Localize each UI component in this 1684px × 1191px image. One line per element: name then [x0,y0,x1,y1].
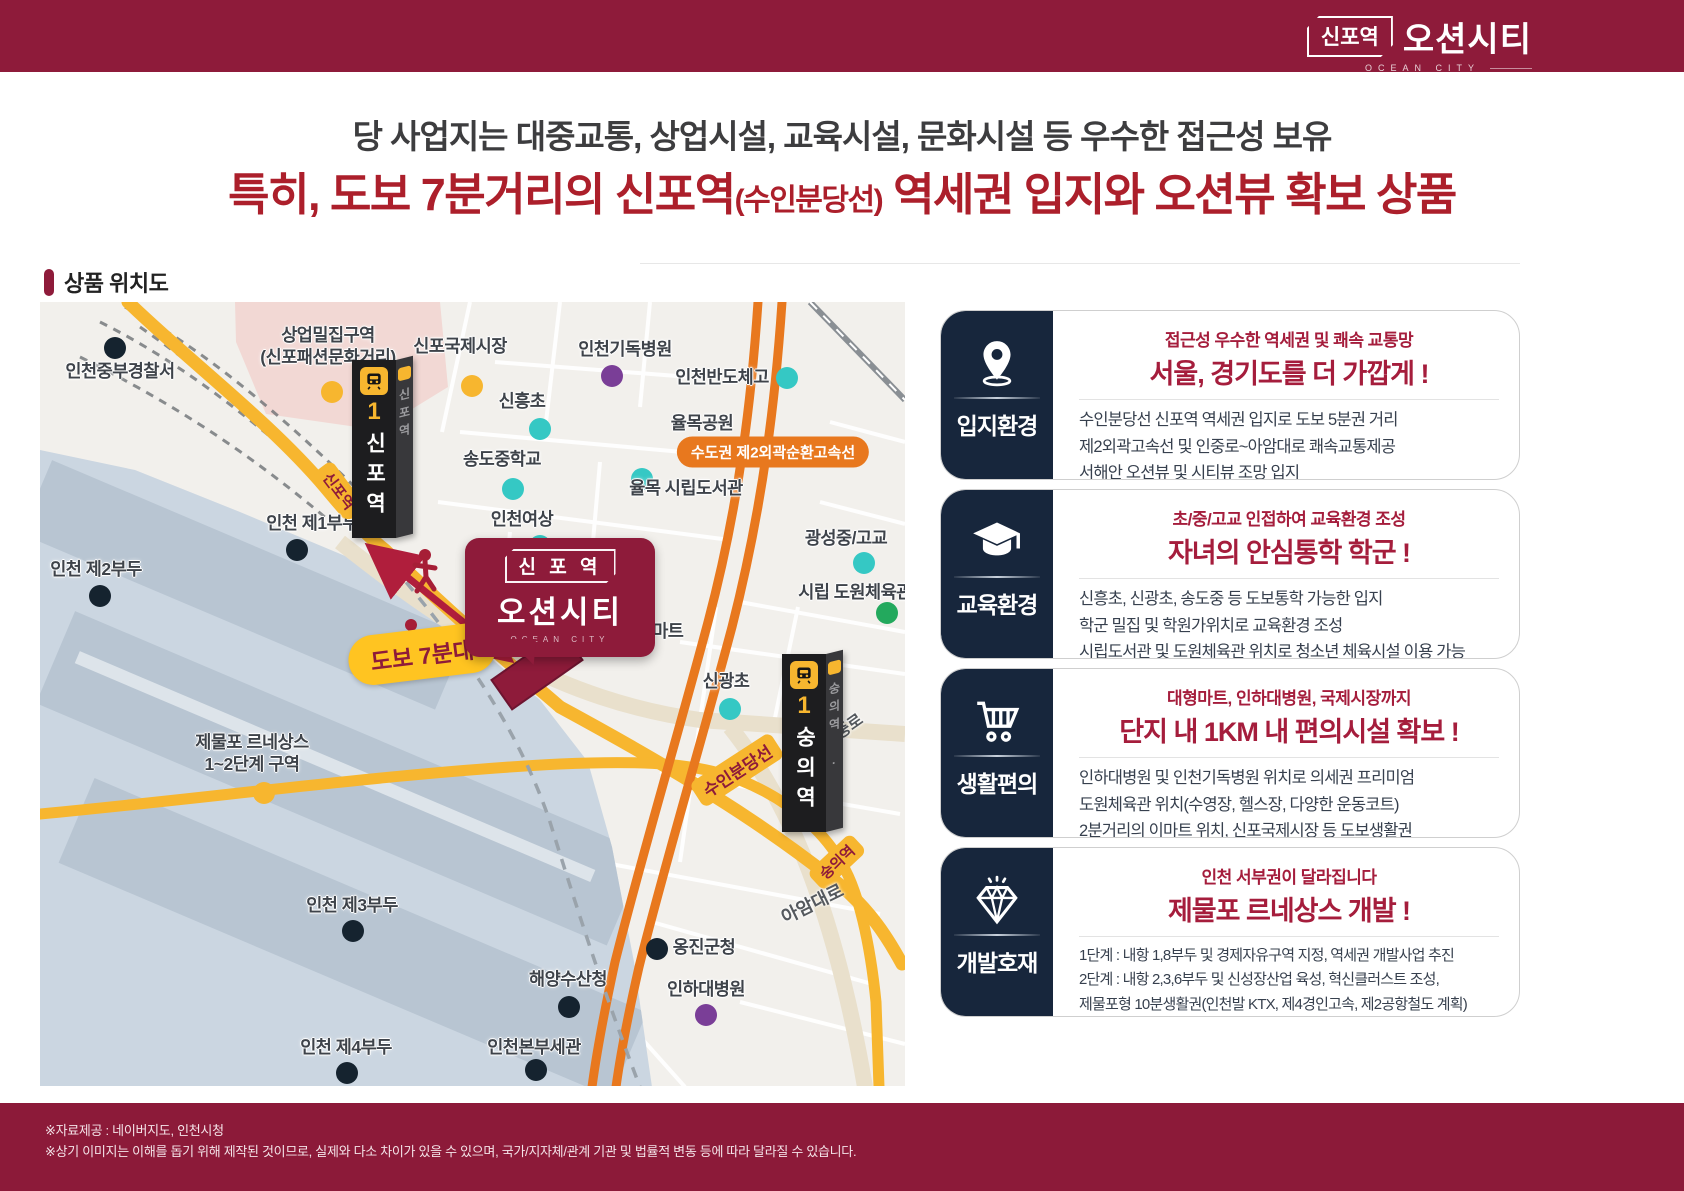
poi-dot [876,602,898,624]
map-label: 신흥초 [499,391,546,413]
site-name: 오션시티 [465,587,655,632]
card-subtitle: 접근성 우수한 역세권 및 쾌속 교통망 [1079,326,1499,351]
poi-dot [558,996,580,1018]
card-category: 생활편의 [957,765,1038,799]
map-label: 인천 제2부두 [50,559,142,581]
card-subtitle: 대형마트, 인하대병원, 국제시장까지 [1079,684,1499,709]
section-marker [44,269,54,296]
poi-dot [646,938,668,960]
location-map: 인천중부경찰서 상업밀집구역(신포패션문화거리) 신포국제시장 신흥초 인천기독… [40,302,905,1086]
site-station-badge: 신 포 역 [505,549,616,583]
card-divider [954,397,1039,399]
map-base-art [40,302,905,1086]
poi-dot [853,552,875,574]
card-line: 제2외곽고속선 및 인중로~아암대로 쾌속교통제공 [1079,434,1499,461]
card-divider [1079,936,1499,937]
card-line: 도원체육관 위치(수영장, 헬스장, 다양한 운동코트) [1079,792,1499,819]
station-line-number: 1 [367,398,380,426]
card-divider [954,576,1039,578]
poi-dot [286,539,308,561]
station-marker-sungui: 1 숭의역 숭의역 · [782,654,843,832]
station-name: 숭의역 [789,726,819,816]
map-label: 신광초 [703,671,750,693]
footer-bar: ※자료제공 : 네이버지도, 인천시청 ※상기 이미지는 이해를 돕기 위해 제… [0,1103,1684,1191]
card-line: 1단계 : 내항 1,8부두 및 경제자유구역 지정, 역세권 개발사업 추진 [1079,944,1499,968]
card-title: 자녀의 안심통학 학군 ! [1079,531,1499,570]
map-label: 인천 제4부두 [300,1037,392,1059]
logo-name: 오션시티 [1403,12,1532,61]
map-label: 인천본부세관 [487,1037,581,1059]
poi-dot [529,418,551,440]
poi-dot [776,367,798,389]
card-line: 제물포형 10분생활권(인천발 KTX, 제4경인고속, 제2공항철도 계획) [1079,993,1499,1017]
poi-dot [342,920,364,942]
shopping-cart-icon [972,693,1022,749]
map-label: 율목 시립도서관 [629,478,743,500]
headline-line2-main: 특히, 도보 7분거리의 신포역 [228,169,734,220]
poi-dot [502,478,524,500]
station-marker-sinpo: 1 신포역 신포역 [352,360,413,538]
card-title: 단지 내 1KM 내 편의시설 확보 ! [1079,710,1499,749]
poi-dot [525,1059,547,1081]
card-line: 2단계 : 내항 2,3,6부두 및 신성장산업 육성, 혁신클러스트 조성, [1079,968,1499,992]
map-label: 광성중/고교 [805,528,887,550]
poi-dot [719,698,741,720]
info-cards: 입지환경 접근성 우수한 역세권 및 쾌속 교통망 서울, 경기도를 더 가깝게… [940,310,1520,1026]
headline-line2-small: (수인분당선) [735,184,882,217]
card-development: 개발호재 인천 서부권이 달라집니다 제물포 르네상스 개발 ! 1단계 : 내… [940,847,1520,1017]
location-pin-icon [972,335,1022,391]
map-label: 인천반도체고 [675,367,769,389]
site-callout: 신 포 역 오션시티 OCEAN CITY [465,538,655,657]
poi-dot [695,1004,717,1026]
station-name: 신포역 [359,432,389,522]
site-subname: OCEAN CITY [465,635,655,644]
map-label: 옹진군청 [673,937,735,959]
map-label: 신포국제시장 [413,336,507,358]
header-bar: 신포역 오션시티 OCEAN CITY [0,0,1684,72]
card-divider [1079,399,1499,400]
headline-line1: 당 사업지는 대중교통, 상업시설, 교육시설, 문화시설 등 우수한 접근성 … [0,110,1684,158]
logo-subtitle: OCEAN CITY [1307,63,1532,73]
map-label: 인천여상 [491,509,553,531]
headline-divider [640,263,1520,264]
graduation-cap-icon [971,514,1023,570]
card-divider [1079,757,1499,758]
card-line: 시립도서관 및 도원체육관 위치로 청소년 체육시설 이용 가능 [1079,639,1499,659]
card-subtitle: 초/중/고교 인접하여 교육환경 조성 [1079,505,1499,530]
brand-logo: 신포역 오션시티 OCEAN CITY [1307,12,1532,73]
map-label: 인하대병원 [667,979,745,1001]
card-education: 교육환경 초/중/고교 인접하여 교육환경 조성 자녀의 안심통학 학군 ! 신… [940,489,1520,659]
card-category: 입지환경 [957,407,1038,441]
poi-dot [89,585,111,607]
poi-dot [601,365,623,387]
headline-line2: 특히, 도보 7분거리의 신포역(수인분당선) 역세권 입지와 오션뷰 확보 상… [0,158,1684,223]
map-label: 제물포 르네상스1~2단계 구역 [195,732,309,776]
card-title: 서울, 경기도를 더 가깝게 ! [1079,352,1499,391]
map-label: 시립 도원체육관 [798,582,905,604]
map-label: 해양수산청 [529,969,607,991]
expressway-label: 수도권 제2외곽순환고속선 [677,437,869,468]
section-header: 상품 위치도 [44,266,168,298]
card-line: 수인분당선 신포역 역세권 입지로 도보 5분권 거리 [1079,407,1499,434]
diamond-icon [972,872,1022,928]
poi-dot [321,381,343,403]
section-title: 상품 위치도 [64,266,168,298]
card-divider [1079,578,1499,579]
map-label: 인천기독병원 [578,339,672,361]
card-category: 교육환경 [957,586,1038,620]
map-label: 율목공원 [671,413,733,435]
headline-line2-tail: 역세권 입지와 오션뷰 확보 상품 [882,169,1456,220]
poi-dot [104,337,126,359]
poster-page: 신포역 오션시티 OCEAN CITY 당 사업지는 대중교통, 상업시설, 교… [0,0,1684,1191]
logo-station-badge: 신포역 [1307,16,1393,57]
card-convenience: 생활편의 대형마트, 인하대병원, 국제시장까지 단지 내 1KM 내 편의시설… [940,668,1520,838]
card-line: 2분거리의 이마트 위치, 신포국제시장 등 도보생활권 [1079,818,1499,838]
card-subtitle: 인천 서부권이 달라집니다 [1079,863,1499,888]
train-icon [828,659,841,675]
train-icon [360,367,388,395]
card-divider [954,755,1039,757]
card-line: 신흥초, 신광초, 송도중 등 도보통학 가능한 입지 [1079,586,1499,613]
map-label: 인천중부경찰서 [65,361,174,383]
footer-source: ※자료제공 : 네이버지도, 인천시청 [45,1120,1644,1141]
poi-dot [253,782,275,804]
poi-dot [461,375,483,397]
train-icon [398,365,411,381]
map-label: 인천 제3부두 [306,895,398,917]
poi-dot [336,1062,358,1084]
card-title: 제물포 르네상스 개발 ! [1079,889,1499,928]
station-line-number: 1 [797,692,810,720]
map-label: 송도중학교 [463,449,541,471]
card-line: 서해안 오션뷰 및 시티뷰 조망 입지 [1079,460,1499,480]
card-line: 인하대병원 및 인천기독병원 위치로 의세권 프리미엄 [1079,765,1499,792]
card-divider [954,934,1039,936]
train-icon [790,661,818,689]
card-location: 입지환경 접근성 우수한 역세권 및 쾌속 교통망 서울, 경기도를 더 가깝게… [940,310,1520,480]
footer-disclaimer: ※상기 이미지는 이해를 돕기 위해 제작된 것이므로, 실제와 다소 차이가 … [45,1141,1644,1162]
card-line: 학군 밀집 및 학원가위치로 교육환경 조성 [1079,613,1499,640]
card-category: 개발호재 [957,944,1038,978]
